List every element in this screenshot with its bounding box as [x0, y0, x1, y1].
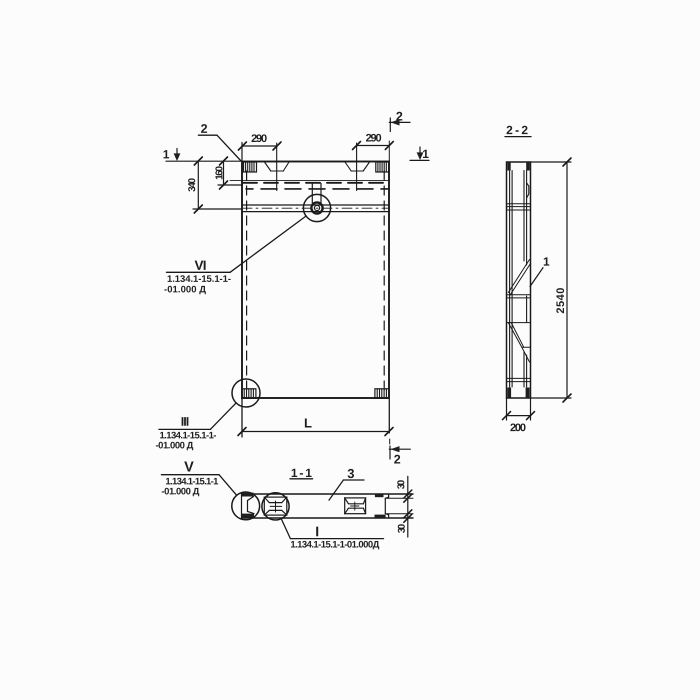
- svg-text:30: 30: [396, 479, 407, 489]
- svg-text:1: 1: [543, 255, 550, 269]
- svg-text:2: 2: [394, 453, 401, 467]
- svg-text:1.134.1-15.1-1-: 1.134.1-15.1-1-: [167, 274, 231, 285]
- svg-text:160: 160: [214, 165, 225, 179]
- svg-text:2540: 2540: [555, 288, 567, 314]
- svg-text:2: 2: [396, 110, 403, 124]
- svg-text:I: I: [315, 523, 319, 539]
- svg-text:3: 3: [347, 466, 354, 481]
- svg-text:200: 200: [510, 422, 526, 434]
- svg-text:1.134.1-15.1-1-01.000Д: 1.134.1-15.1-1-01.000Д: [290, 539, 379, 550]
- svg-text:III: III: [181, 415, 190, 429]
- svg-text:290: 290: [366, 133, 382, 145]
- svg-text:V: V: [184, 460, 194, 476]
- svg-text:1-1: 1-1: [291, 466, 312, 480]
- svg-text:290: 290: [251, 133, 267, 145]
- svg-text:-01.000 Д: -01.000 Д: [161, 486, 199, 497]
- svg-text:2-2: 2-2: [506, 123, 528, 137]
- svg-text:2: 2: [201, 122, 208, 136]
- svg-text:30: 30: [397, 523, 408, 533]
- svg-text:L: L: [304, 415, 312, 430]
- svg-text:-01.000 Д: -01.000 Д: [155, 440, 193, 451]
- svg-text:1: 1: [163, 147, 170, 161]
- svg-text:340: 340: [187, 177, 198, 191]
- svg-text:1: 1: [422, 147, 429, 161]
- svg-text:VI: VI: [195, 258, 207, 273]
- svg-text:-01.000 Д: -01.000 Д: [164, 284, 206, 295]
